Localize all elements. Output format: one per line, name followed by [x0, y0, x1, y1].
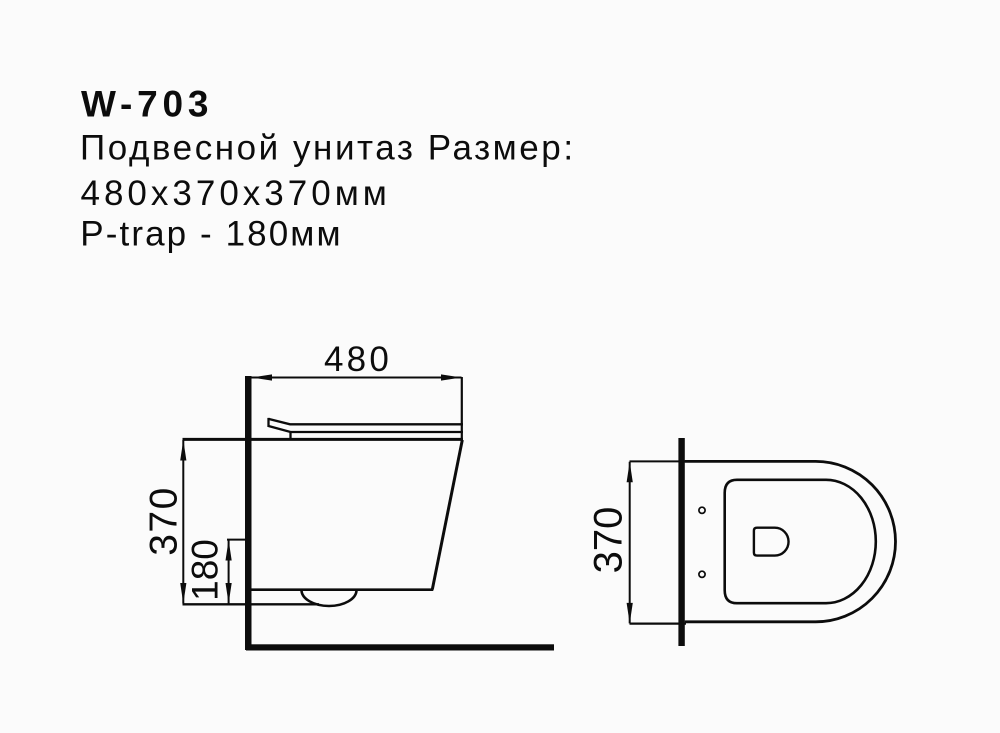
- svg-text:370: 370: [587, 507, 631, 574]
- svg-text:P-trap - 180мм: P-trap - 180мм: [80, 215, 342, 254]
- svg-text:370: 370: [143, 486, 186, 556]
- svg-text:180: 180: [185, 539, 226, 601]
- svg-text:W-703: W-703: [81, 84, 213, 125]
- svg-text:Подвесной унитаз Размер:: Подвесной унитаз Размер:: [80, 129, 576, 168]
- svg-text:480: 480: [324, 340, 392, 379]
- svg-text:480x370x370мм: 480x370x370мм: [81, 174, 391, 213]
